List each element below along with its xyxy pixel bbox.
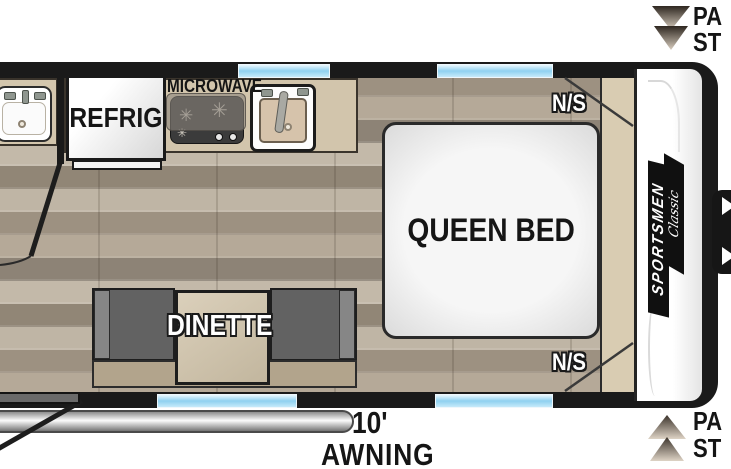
- dinette-bench-right: [270, 288, 357, 361]
- queen-bed-label: QUEEN BED: [407, 212, 574, 249]
- microwave-label: MICROWAVE: [167, 76, 262, 97]
- pass-thru-arrow-up-icon: [650, 437, 684, 461]
- drain-icon: [284, 123, 292, 131]
- entry-step: [0, 392, 80, 404]
- bathroom-sink-basin: [2, 102, 46, 135]
- faucet-handle-icon: [34, 92, 46, 100]
- pass-thru-storage-label-top: ST: [693, 27, 721, 58]
- dinette-bench-left: [92, 288, 175, 361]
- window-bottom-dinette: [157, 394, 297, 408]
- dinette-label: DINETTE: [167, 310, 272, 343]
- nightstand-label-top: N/S: [552, 90, 586, 118]
- dinette-bench-back: [94, 290, 110, 359]
- pass-thru-arrow-down-icon: [654, 26, 688, 50]
- window-top-bedroom: [437, 64, 553, 78]
- refrigerator-vent: [72, 160, 162, 170]
- floorplan-canvas: SPORTSMEN Classic REFRIG ✳ ✳ ✳: [0, 0, 731, 469]
- bathroom-wall: [57, 76, 64, 164]
- brand-logo: SPORTSMEN Classic: [644, 148, 690, 326]
- brand-series-bar: Classic: [664, 153, 684, 275]
- faucet-handle-icon: [297, 88, 309, 96]
- stove-knob-icon: [229, 133, 237, 141]
- front-storage-strip: [600, 78, 634, 392]
- refrigerator-label: REFRIG: [69, 102, 162, 134]
- pass-thru-storage-label-bottom: ST: [693, 433, 721, 464]
- refrigerator: REFRIG: [66, 75, 166, 161]
- pass-thru-arrow-up-icon: [648, 415, 686, 439]
- nightstand-label-bottom: N/S: [552, 349, 586, 377]
- faucet-spout-icon: [22, 90, 29, 104]
- drain-icon: [18, 120, 26, 128]
- window-bottom-bedroom: [435, 394, 553, 408]
- faucet-handle-icon: [4, 92, 16, 100]
- queen-bed: QUEEN BED: [382, 122, 600, 339]
- bathroom-sink: [0, 86, 52, 142]
- awning-length-label: 10': [352, 405, 388, 441]
- awning-label: AWNING: [321, 437, 434, 469]
- awning-tube: [0, 410, 354, 433]
- brand-series: Classic: [667, 188, 682, 240]
- faucet-handle-icon: [261, 89, 273, 97]
- dinette-bench-back: [339, 290, 355, 359]
- microwave-overlay: [166, 93, 246, 131]
- stove-knob-icon: [215, 133, 223, 141]
